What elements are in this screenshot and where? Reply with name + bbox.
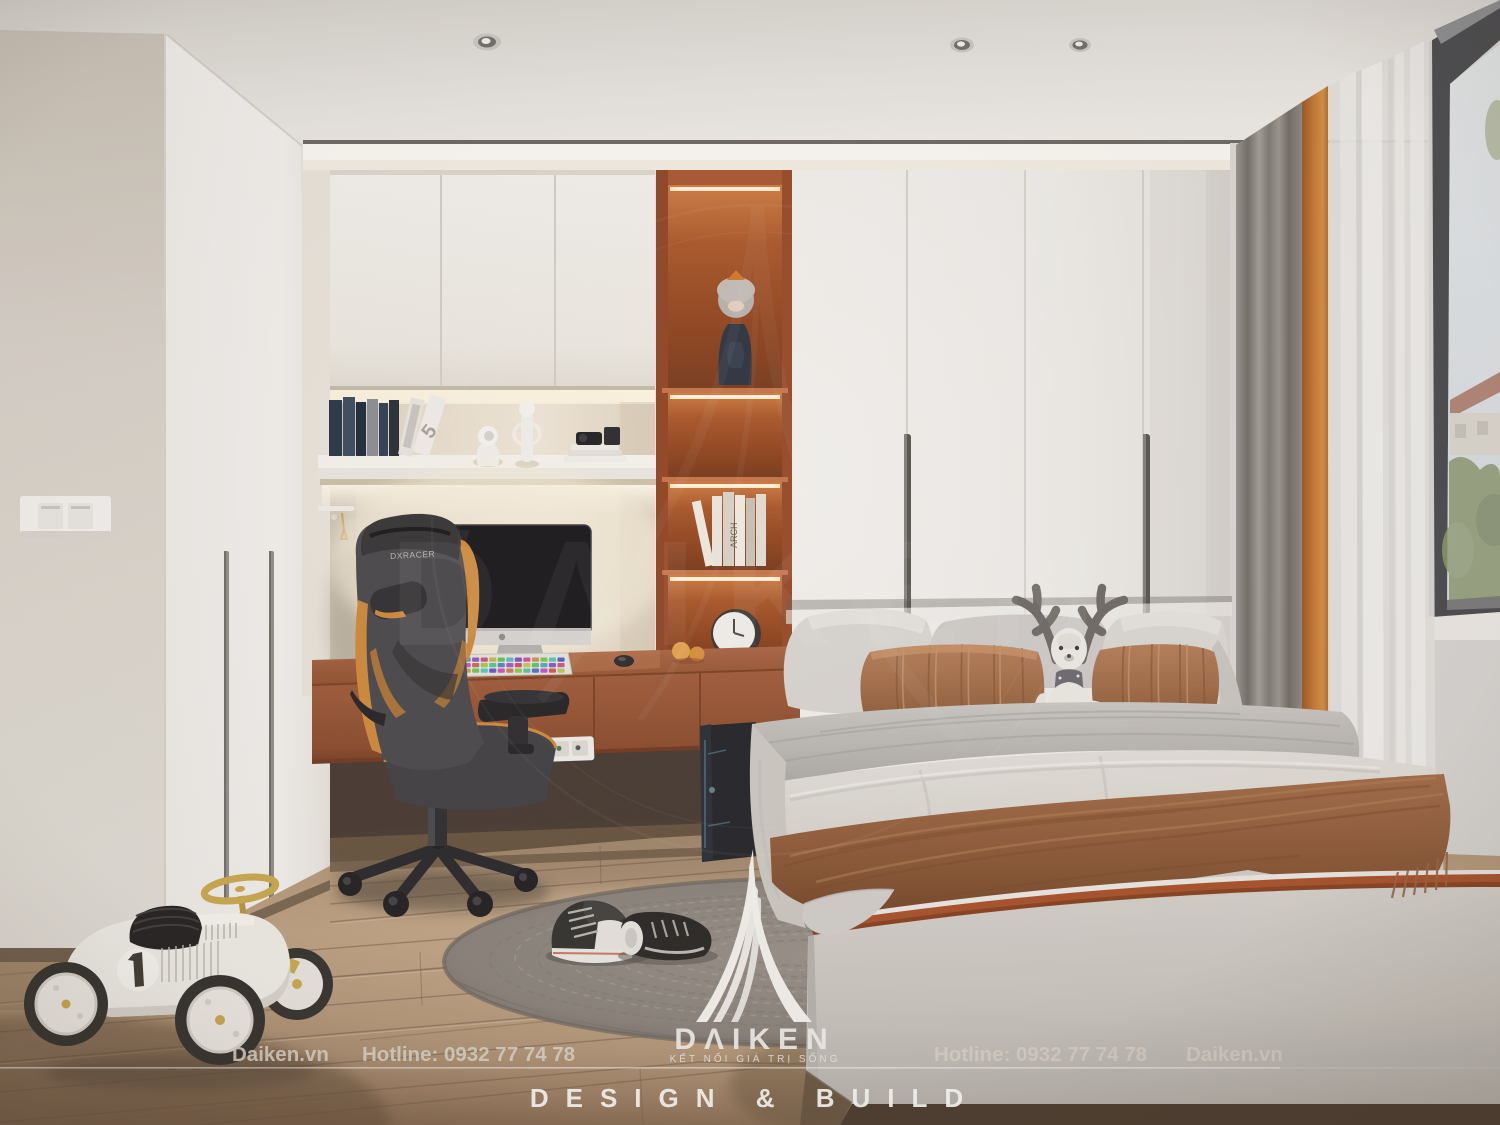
svg-text:DESIGN & BUILD: DESIGN & BUILD (530, 1083, 980, 1113)
